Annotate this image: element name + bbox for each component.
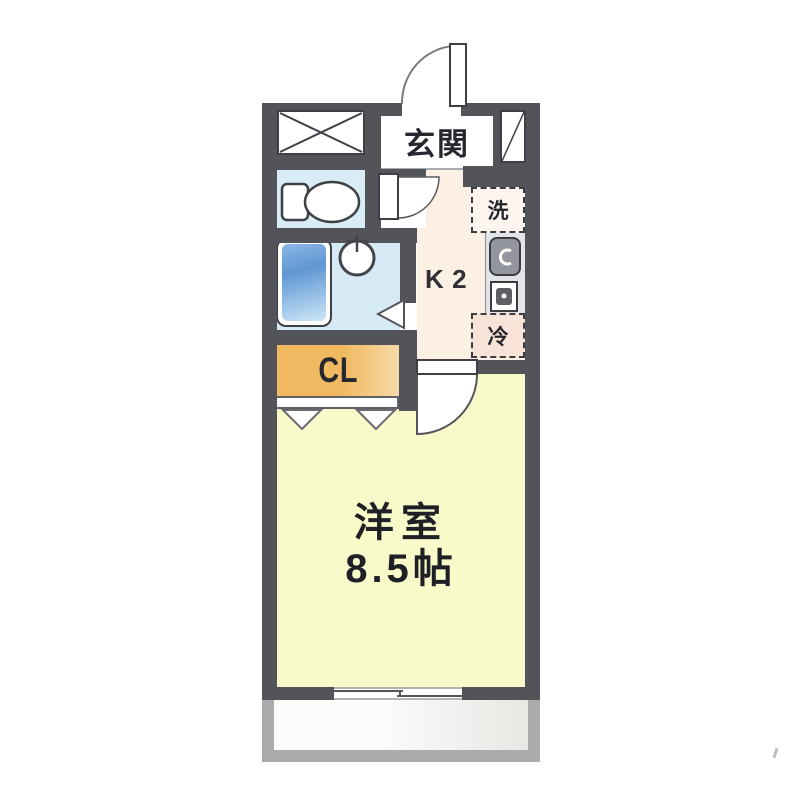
room-western-size: 8.5帖	[345, 546, 457, 592]
kitchen-room-door-leaf	[417, 360, 477, 374]
wall-left	[262, 103, 277, 700]
wall-entrance-left-column	[365, 103, 381, 243]
wall-bath-right	[400, 243, 416, 303]
room-kitchen-label: K2	[425, 264, 475, 295]
closet-label: CL	[318, 351, 358, 391]
wall-closet-right	[399, 345, 417, 411]
washing-machine-space: 洗	[471, 187, 525, 233]
shoe-cabinet	[500, 110, 526, 163]
wall-bath-closet-divider	[262, 330, 417, 345]
wall-above-toilet-door	[381, 169, 426, 177]
stove-burner	[496, 288, 512, 305]
window-opening	[334, 687, 462, 700]
closet-door-strip	[277, 396, 399, 409]
room-western-label: 洋室 8.5帖	[345, 500, 457, 592]
wall-under-meterbox	[277, 155, 365, 170]
wall-kitchen-room-divider	[477, 360, 540, 374]
scan-artifact	[773, 748, 779, 758]
room-entrance-label: 玄関	[404, 119, 470, 164]
meter-box	[277, 110, 365, 155]
wall-toilet-bath-divider	[277, 228, 417, 243]
room-toilet	[277, 170, 365, 228]
floor-plan: 洋室 8.5帖 K2 玄関 CL 洗 冷	[0, 0, 800, 800]
wall-bottom-right	[462, 687, 540, 700]
closet: CL	[277, 345, 399, 396]
room-entrance: 玄関	[381, 115, 493, 170]
refrigerator-space: 冷	[471, 313, 525, 358]
entrance-door-arc	[402, 46, 453, 104]
fridge-label: 冷	[488, 321, 509, 351]
room-western: 洋室 8.5帖	[277, 374, 525, 688]
entrance-door-leaf	[450, 44, 466, 106]
room-western-name: 洋室	[345, 500, 457, 546]
hallway	[381, 177, 426, 228]
kitchen-sink	[489, 237, 521, 276]
washer-label: 洗	[488, 195, 509, 225]
bathtub-water	[282, 244, 326, 321]
balcony-floor	[274, 700, 528, 750]
wall-bottom-left	[262, 687, 334, 700]
wall-right	[525, 103, 540, 700]
